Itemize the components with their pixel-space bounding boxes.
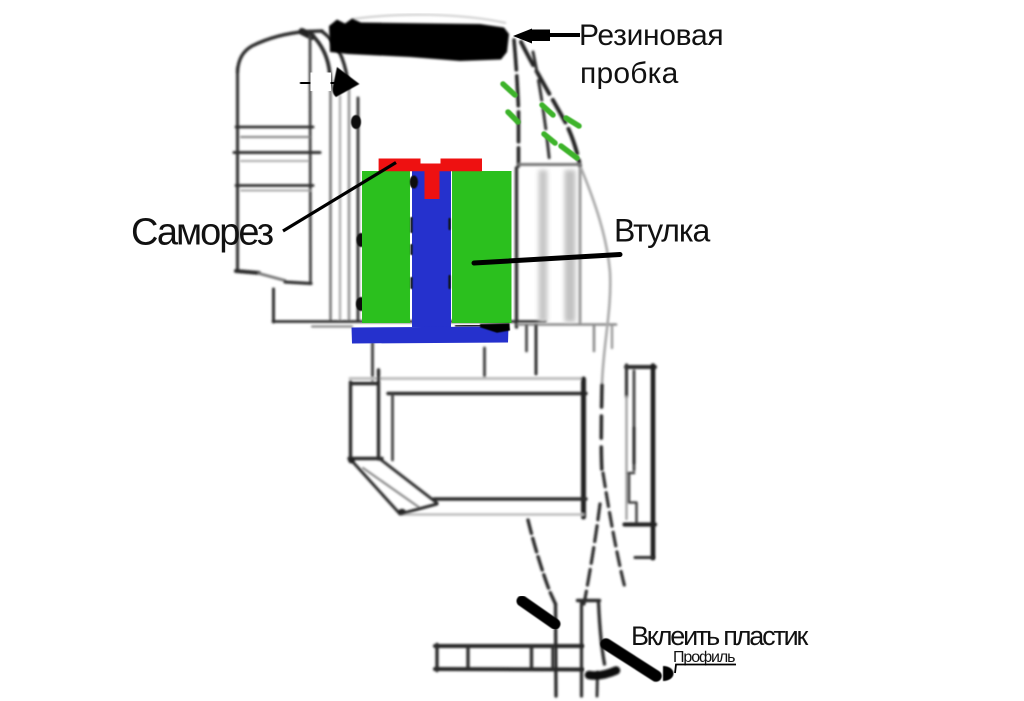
svg-text:Профиль: Профиль bbox=[673, 649, 735, 666]
svg-text:Саморез: Саморез bbox=[131, 212, 273, 254]
svg-text:Втулка: Втулка bbox=[614, 213, 710, 249]
svg-text:пробка: пробка bbox=[580, 57, 679, 90]
svg-text:Резиновая: Резиновая bbox=[579, 19, 723, 52]
svg-text:Вклеить пластик: Вклеить пластик bbox=[631, 621, 808, 651]
